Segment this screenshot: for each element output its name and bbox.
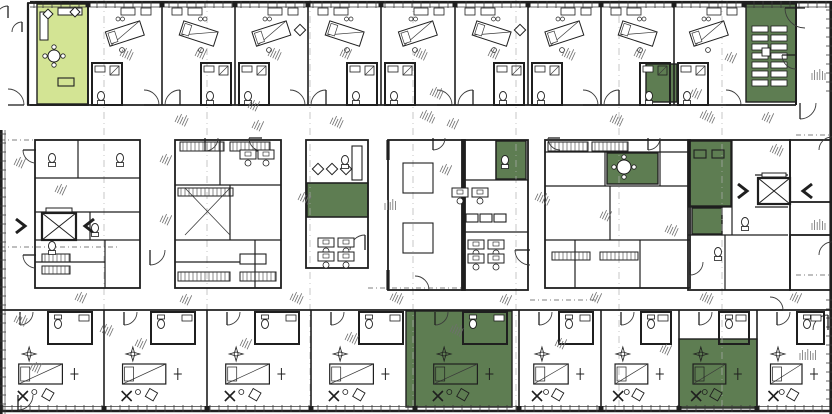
toilet-tank <box>262 315 269 319</box>
stair-direction-chevron <box>803 184 812 198</box>
star-symbol <box>771 347 785 361</box>
desk-chair <box>493 264 499 270</box>
toilet-tank <box>92 233 99 237</box>
table <box>480 214 492 222</box>
sink <box>182 315 192 321</box>
toilet <box>726 320 733 329</box>
toilet <box>342 156 349 165</box>
toilet <box>715 248 722 257</box>
pillow <box>617 367 626 381</box>
door-swing <box>124 312 137 325</box>
wardrobe <box>727 8 737 15</box>
pillow <box>536 367 545 381</box>
toilet <box>366 320 373 329</box>
door-swing <box>144 90 159 105</box>
room-label-text <box>440 162 452 175</box>
toilet-tank <box>646 101 653 105</box>
room-label-text <box>14 155 26 168</box>
stool <box>706 48 711 53</box>
wardrobe <box>288 8 298 15</box>
elevator-door <box>46 208 72 212</box>
shelf-rack <box>240 272 276 281</box>
door-swing <box>437 90 452 105</box>
toilet-tank <box>366 315 373 319</box>
door-swing <box>458 90 473 105</box>
door-swing <box>583 90 598 105</box>
desk-chair <box>343 262 349 268</box>
door-swing <box>311 90 326 105</box>
meeting-table-center <box>762 48 770 56</box>
room-label-text <box>690 86 702 99</box>
chair-x <box>329 391 339 401</box>
toilet <box>566 320 573 329</box>
column <box>742 1 747 7</box>
column <box>0 406 3 412</box>
lounge-chair <box>294 24 305 35</box>
table <box>494 214 506 222</box>
sink <box>535 66 545 72</box>
room-block <box>790 140 832 202</box>
sink <box>681 66 691 72</box>
meeting-table-seat <box>771 26 787 32</box>
pillow <box>21 367 30 381</box>
sink <box>580 315 590 321</box>
desk-chair <box>457 198 463 204</box>
desk-chair <box>323 262 329 268</box>
star-symbol <box>535 347 549 361</box>
desk-chair <box>473 264 479 270</box>
door-swing <box>165 90 180 105</box>
room-label-text <box>590 290 602 303</box>
toilet-tank <box>207 101 214 105</box>
room-label-text <box>665 222 679 236</box>
room-label-text <box>390 290 404 304</box>
table <box>466 214 478 222</box>
chair-x <box>18 391 28 401</box>
toilet <box>245 92 252 101</box>
chair-tilted <box>787 389 799 401</box>
chair <box>632 165 636 169</box>
highlighted-room-mid-left-room <box>307 183 368 217</box>
chair <box>61 54 65 58</box>
patient-room-top <box>385 8 452 105</box>
room-label-text <box>800 349 816 360</box>
bed <box>689 21 728 46</box>
highlighted-room-bottom-right-room <box>679 339 757 408</box>
toilet-tank <box>726 315 733 319</box>
toilet-tank <box>342 165 349 169</box>
round-table <box>48 50 60 62</box>
highlighted-room-mid-center-room <box>496 141 526 179</box>
toilet <box>353 92 360 101</box>
door-swing <box>12 22 22 32</box>
room-label-text <box>160 152 172 165</box>
toilet-tank <box>684 101 691 105</box>
wardrobe <box>188 8 202 15</box>
toilet-tank <box>500 101 507 105</box>
wardrobe <box>465 8 475 15</box>
room-label-text <box>30 360 42 373</box>
toilet <box>207 92 214 101</box>
chair-tilted <box>42 389 54 401</box>
lounge-chair <box>312 163 323 174</box>
door-swing <box>726 90 741 105</box>
wardrobe <box>481 8 495 15</box>
room-label-text <box>345 330 359 344</box>
room-label-text <box>385 199 395 210</box>
door-swing <box>331 312 344 325</box>
desk-chair <box>263 160 269 166</box>
desk <box>318 238 334 247</box>
room-label-text <box>610 112 624 126</box>
room-label-text <box>762 110 774 123</box>
toilet-tank <box>158 315 165 319</box>
stool <box>779 390 784 395</box>
toilet <box>391 92 398 101</box>
door-swing <box>0 6 8 18</box>
stool <box>544 390 549 395</box>
toilet <box>262 320 269 329</box>
room-label-text <box>535 190 551 205</box>
toilet-tank <box>502 165 509 169</box>
floorplan-canvas <box>0 0 832 414</box>
pillow <box>125 367 134 381</box>
room-label-text <box>812 219 825 230</box>
toilet-tank <box>566 315 573 319</box>
shelf-rack <box>548 142 588 151</box>
meeting-table-seat <box>771 71 787 77</box>
chair-tilted <box>551 389 563 401</box>
chair-tilted <box>353 389 365 401</box>
meeting-table-seat <box>752 62 768 68</box>
pillow <box>332 367 341 381</box>
sink <box>350 66 360 72</box>
wardrobe <box>334 8 348 15</box>
toilet <box>55 320 62 329</box>
toilet <box>804 320 811 329</box>
toilet <box>98 92 105 101</box>
desk <box>240 150 256 159</box>
toilet-tank <box>715 257 722 261</box>
door-swing <box>227 312 240 325</box>
wardrobe <box>414 8 428 15</box>
patient-room-bottom <box>532 312 593 401</box>
desk <box>338 252 354 261</box>
desk <box>472 188 488 197</box>
room-label-text <box>75 290 87 303</box>
room-label-text <box>240 336 252 349</box>
chair-tilted <box>632 389 644 401</box>
sink <box>658 315 668 321</box>
star-symbol <box>333 347 347 361</box>
desk <box>258 150 274 159</box>
star-symbol <box>229 347 243 361</box>
toilet-tank <box>49 251 56 255</box>
toilet-tank <box>98 101 105 105</box>
desk <box>318 252 334 261</box>
room-label-text <box>700 108 716 123</box>
lounge-chair <box>326 163 337 174</box>
meeting-table-seat <box>771 53 787 59</box>
sink <box>390 315 400 321</box>
floor-plan-drawing <box>0 0 832 414</box>
toilet-tank <box>49 163 56 167</box>
wardrobe <box>318 8 328 15</box>
chair-tilted <box>145 389 157 401</box>
chair-x <box>122 391 132 401</box>
shelf-rack <box>42 266 70 274</box>
patient-room-bottom <box>122 312 195 401</box>
room-label-text <box>725 50 737 63</box>
room-label-text <box>500 292 512 305</box>
bed <box>545 21 584 46</box>
patient-room-top <box>678 8 741 105</box>
door-swing <box>800 103 816 119</box>
wardrobe <box>268 8 282 15</box>
door-swing <box>8 89 24 105</box>
patient-room-bottom <box>329 312 403 401</box>
meeting-table-seat <box>752 26 768 32</box>
toilet <box>646 92 653 101</box>
star-symbol <box>126 347 140 361</box>
wardrobe <box>141 8 151 15</box>
sink <box>242 66 252 72</box>
desk <box>488 240 504 249</box>
door-swing <box>777 312 790 325</box>
bed <box>472 21 511 46</box>
room-label-text <box>252 118 264 131</box>
meeting-table-seat <box>771 80 787 86</box>
room-label-text <box>55 182 67 195</box>
wardrobe <box>434 8 444 15</box>
sink <box>736 315 746 321</box>
desk-chair <box>477 198 483 204</box>
room-label-text <box>790 290 802 303</box>
bed <box>618 21 657 46</box>
toilet <box>742 218 749 227</box>
stool <box>343 390 348 395</box>
chair <box>52 45 56 49</box>
wardrobe <box>121 8 135 15</box>
chair <box>52 63 56 67</box>
bed <box>398 21 437 46</box>
desk <box>468 240 484 249</box>
chair <box>43 54 47 58</box>
chair-x <box>769 391 779 401</box>
table <box>403 223 433 253</box>
sink <box>388 66 398 72</box>
wardrobe <box>581 8 591 15</box>
chair <box>612 165 616 169</box>
chair-x <box>532 391 542 401</box>
toilet <box>500 92 507 101</box>
patient-room-top <box>239 8 305 105</box>
toilet-tank <box>538 101 545 105</box>
toilet <box>49 154 56 163</box>
toilet <box>158 320 165 329</box>
shelf-rack <box>592 142 628 151</box>
toilet-tank <box>55 315 62 319</box>
meeting-table-seat <box>771 35 787 41</box>
door-swing <box>621 312 634 325</box>
patient-room-top <box>311 8 377 105</box>
room-label-text <box>330 114 344 128</box>
table <box>352 146 362 180</box>
toilet <box>92 224 99 233</box>
toilet-tank <box>353 101 360 105</box>
chair-x <box>225 391 235 401</box>
sink <box>95 66 105 72</box>
pillow <box>228 367 237 381</box>
door-swing <box>290 90 305 105</box>
room-label-text <box>430 85 444 99</box>
sink <box>286 315 296 321</box>
room-label-text <box>160 212 172 225</box>
chair-x <box>613 391 623 401</box>
sink <box>811 315 821 321</box>
desk <box>452 188 468 197</box>
toilet <box>49 242 56 251</box>
wardrobe <box>707 8 721 15</box>
room-label-text <box>700 290 714 304</box>
wardrobe <box>611 8 621 15</box>
round-table <box>617 160 631 174</box>
toilet <box>470 320 477 329</box>
pillow <box>773 367 782 381</box>
star-symbol <box>22 347 36 361</box>
door-swing <box>150 250 165 265</box>
desk <box>488 254 504 263</box>
meeting-table-seat <box>752 80 768 86</box>
door-swing <box>23 255 36 268</box>
sink <box>497 66 507 72</box>
door-swing <box>604 90 619 105</box>
door-swing <box>699 312 712 325</box>
room-label-text <box>420 108 436 123</box>
chair <box>622 155 626 159</box>
toilet-tank <box>117 163 124 167</box>
room-label-text <box>812 69 825 80</box>
wardrobe <box>561 8 575 15</box>
door-swing <box>770 297 783 310</box>
highlighted-room-far-right-room <box>689 141 731 206</box>
meeting-table-seat <box>771 44 787 50</box>
toilet <box>538 92 545 101</box>
toilet-tank <box>470 315 477 319</box>
chair-tilted <box>249 389 261 401</box>
door-swing <box>690 262 703 275</box>
patient-room-bottom <box>613 312 671 401</box>
stool <box>239 390 244 395</box>
bed <box>252 21 291 46</box>
toilet-tank <box>804 315 811 319</box>
toilet <box>502 156 509 165</box>
sink <box>79 315 89 321</box>
stair-direction-chevron <box>16 219 25 233</box>
toilet-tank <box>742 227 749 231</box>
room-label-text <box>447 116 459 129</box>
meeting-table-seat <box>752 35 768 41</box>
wardrobe <box>172 8 182 15</box>
desk <box>338 238 354 247</box>
room-label-text <box>290 290 304 304</box>
shelf-rack <box>180 142 224 151</box>
toilet-tank <box>648 315 655 319</box>
desk-chair <box>245 160 251 166</box>
table <box>403 163 433 193</box>
star-symbol <box>616 347 630 361</box>
sink <box>643 66 653 72</box>
highlighted-rooms-layer <box>37 4 796 408</box>
room-label-text <box>14 312 28 326</box>
elevator-door <box>762 173 786 177</box>
toilet <box>648 320 655 329</box>
room-label-text <box>100 322 114 336</box>
table <box>240 254 266 264</box>
room-label-text <box>770 142 784 156</box>
patient-room-bottom <box>18 312 92 401</box>
bed <box>105 21 144 46</box>
room-label-text <box>135 336 147 349</box>
bed <box>179 21 218 46</box>
toilet <box>117 154 124 163</box>
stair-direction-chevron <box>738 184 747 198</box>
door-swing <box>23 150 36 163</box>
sink <box>204 66 214 72</box>
room-label-text <box>175 112 189 126</box>
chair <box>622 175 626 179</box>
highlighted-room-far-right-pod <box>692 208 722 234</box>
shelf-rack <box>178 272 230 281</box>
toilet <box>684 92 691 101</box>
meeting-table-seat <box>752 71 768 77</box>
bed <box>325 21 364 46</box>
door-swing <box>539 312 552 325</box>
toilet-tank <box>391 101 398 105</box>
room-label-text <box>180 292 192 305</box>
desk <box>468 254 484 263</box>
stool <box>32 390 37 395</box>
stool <box>624 390 629 395</box>
stool <box>135 390 140 395</box>
wardrobe <box>627 8 641 15</box>
shelf-rack <box>42 254 70 262</box>
patient-room-bottom <box>225 312 299 401</box>
room-label-text <box>555 336 567 349</box>
sink <box>494 315 504 321</box>
door-swing <box>18 395 33 410</box>
